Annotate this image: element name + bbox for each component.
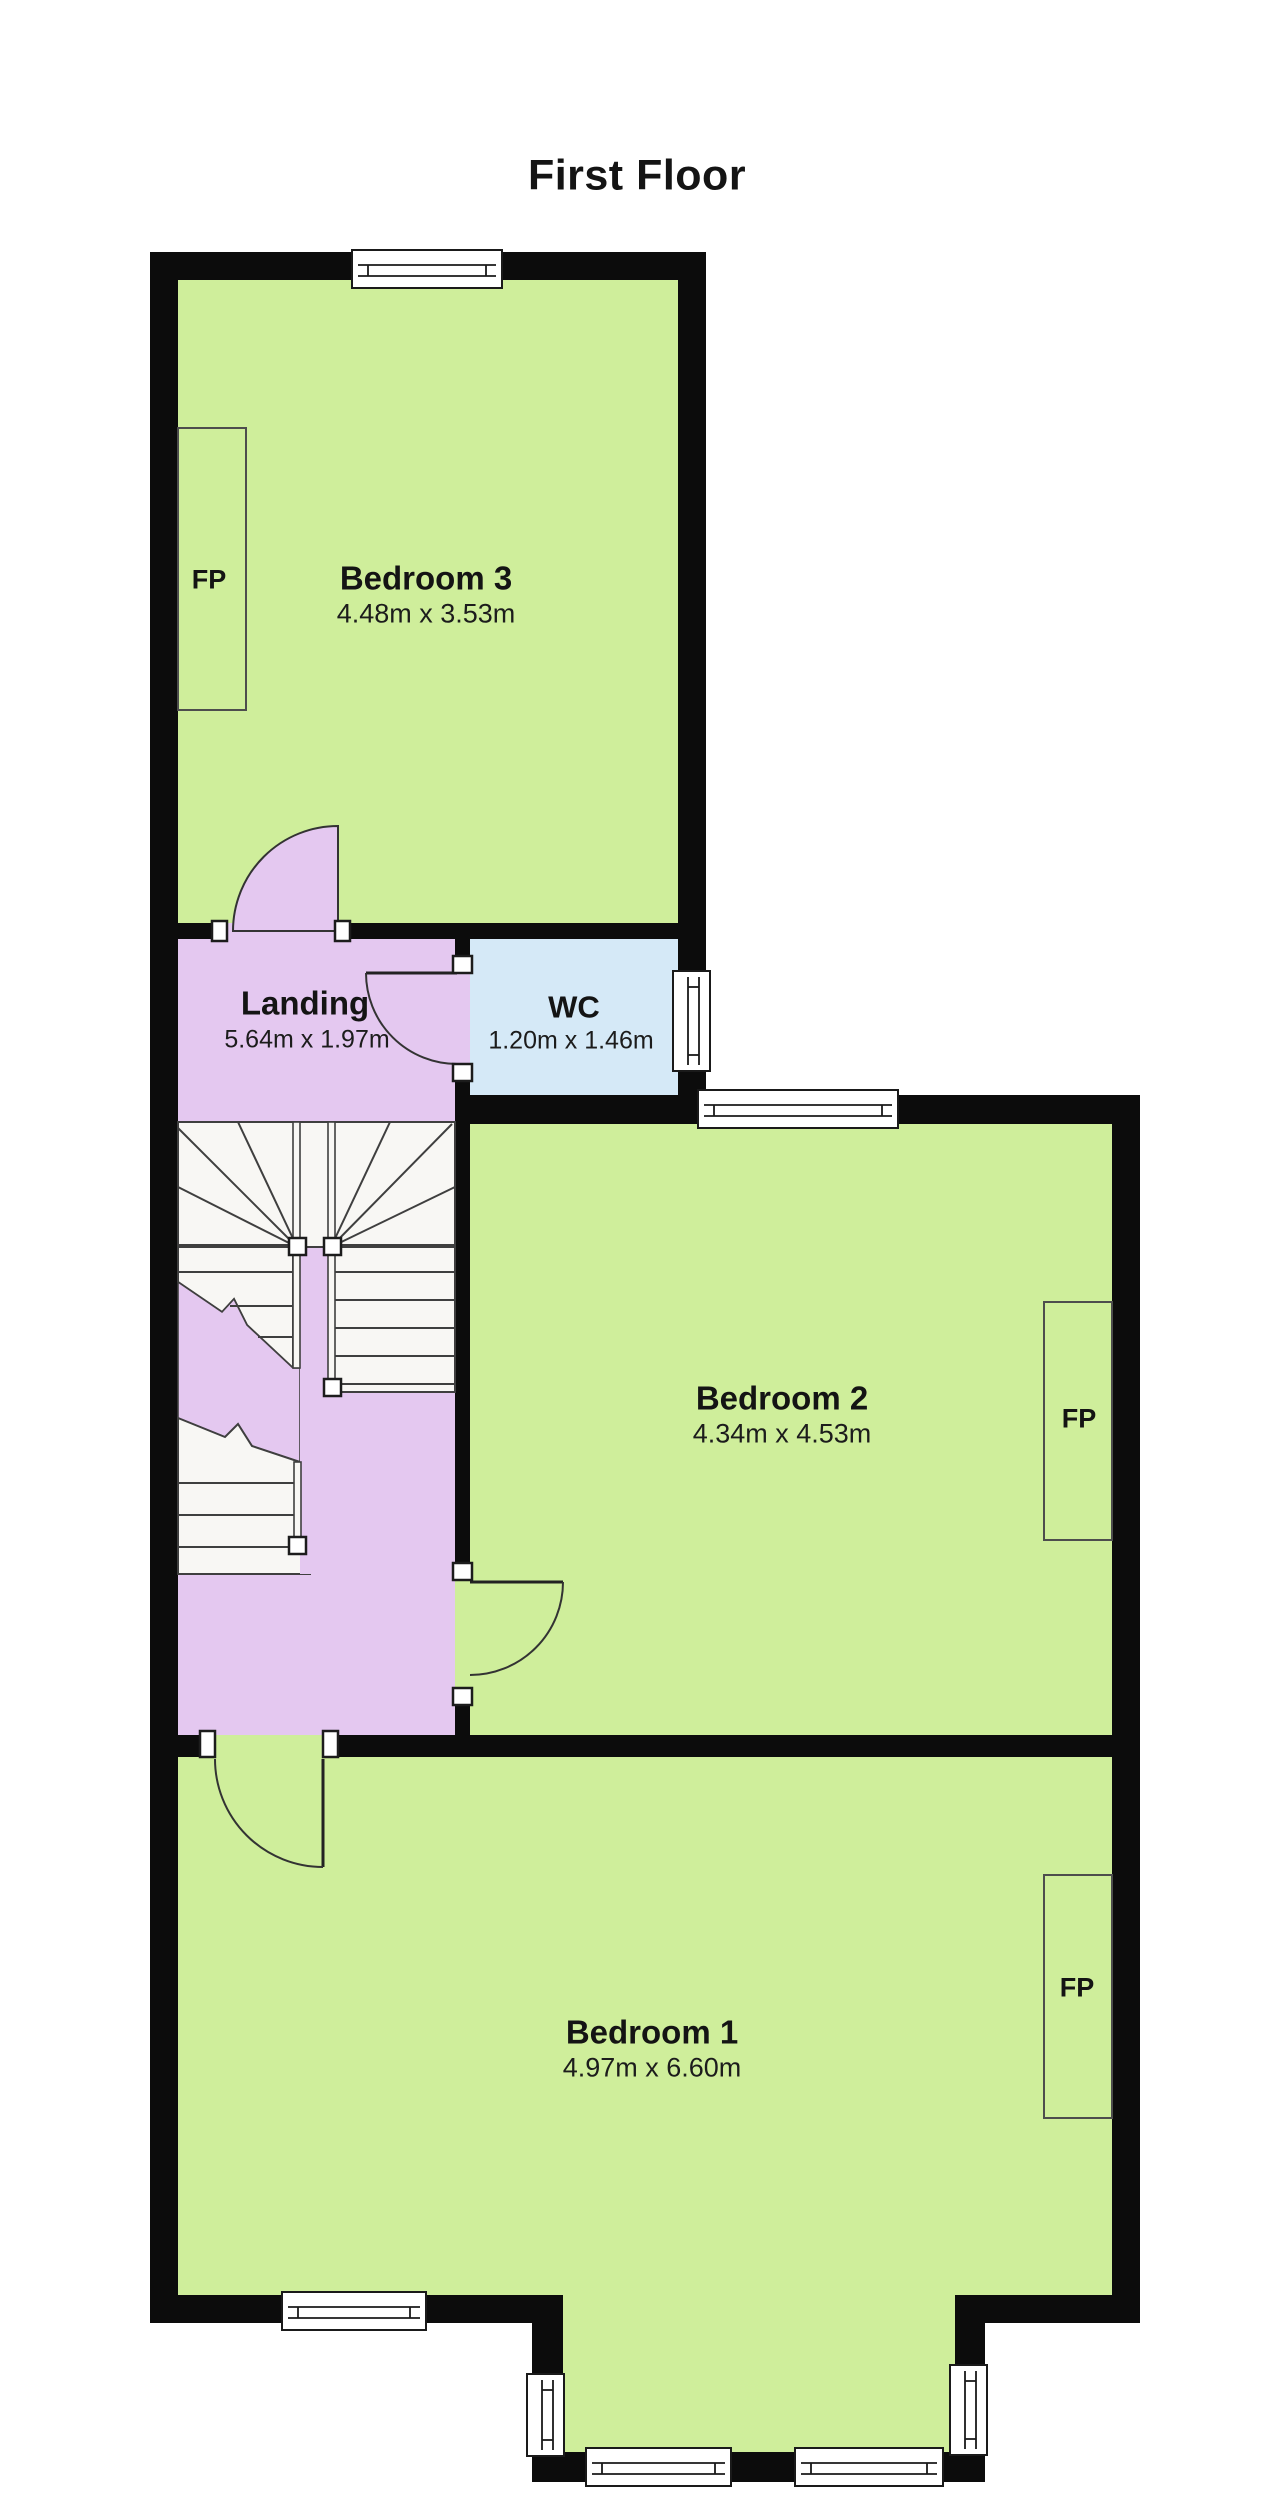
page-title: First Floor xyxy=(528,155,746,198)
window-bay-bottom-right xyxy=(795,2448,943,2486)
floor-plan: First Floor Bedroom 3 4.48m x 3.53m Land… xyxy=(0,0,1280,2504)
bedroom1-door-gap xyxy=(215,1735,323,1757)
wall-lower-right xyxy=(1112,1095,1140,2323)
room-dims-wc: 1.20m x 1.46m xyxy=(488,1029,653,1054)
window-wc-right xyxy=(673,971,710,1071)
wc-door-gap xyxy=(455,973,470,1066)
window-bay-bottom-left xyxy=(586,2448,731,2486)
window-bedroom1-bottom-left xyxy=(282,2292,426,2330)
fireplace-label-bedroom3: FP xyxy=(192,567,227,594)
room-dims-bedroom3: 4.48m x 3.53m xyxy=(337,601,516,628)
stair-center-void xyxy=(300,1251,328,1574)
stair-right-flight xyxy=(328,1245,455,1392)
room-label-bedroom2: Bedroom 2 xyxy=(696,1382,868,1415)
bedroom1-bay-floor xyxy=(563,2295,955,2452)
fireplace-label-bedroom2: FP xyxy=(1062,1406,1097,1433)
room-dims-bedroom2: 4.34m x 4.53m xyxy=(693,1421,872,1448)
wall-landing-right-b xyxy=(455,1066,470,1580)
wall-bottom-right xyxy=(955,2295,1140,2323)
window-bedroom2-top xyxy=(698,1090,898,1128)
fireplace-label-bedroom1: FP xyxy=(1060,1975,1095,2002)
room-dims-bedroom1: 4.97m x 6.60m xyxy=(563,2055,742,2082)
floor-plan-drawing xyxy=(0,0,1280,2504)
window-bedroom3-top xyxy=(352,250,502,288)
stair-winder xyxy=(178,1122,455,1247)
room-label-wc: WC xyxy=(548,992,600,1023)
room-label-bedroom1: Bedroom 1 xyxy=(566,2016,738,2049)
wall-bedroom1-top-b xyxy=(323,1735,1112,1757)
wall-left xyxy=(150,252,178,2323)
bedroom2-door-gap xyxy=(455,1580,470,1688)
room-label-bedroom3: Bedroom 3 xyxy=(340,562,512,595)
room-label-landing: Landing xyxy=(241,987,369,1020)
window-bay-right xyxy=(950,2365,987,2455)
wall-bedroom3-landing-b xyxy=(335,923,678,939)
room-dims-landing: 5.64m x 1.97m xyxy=(224,1028,389,1053)
window-bay-left xyxy=(527,2374,564,2456)
